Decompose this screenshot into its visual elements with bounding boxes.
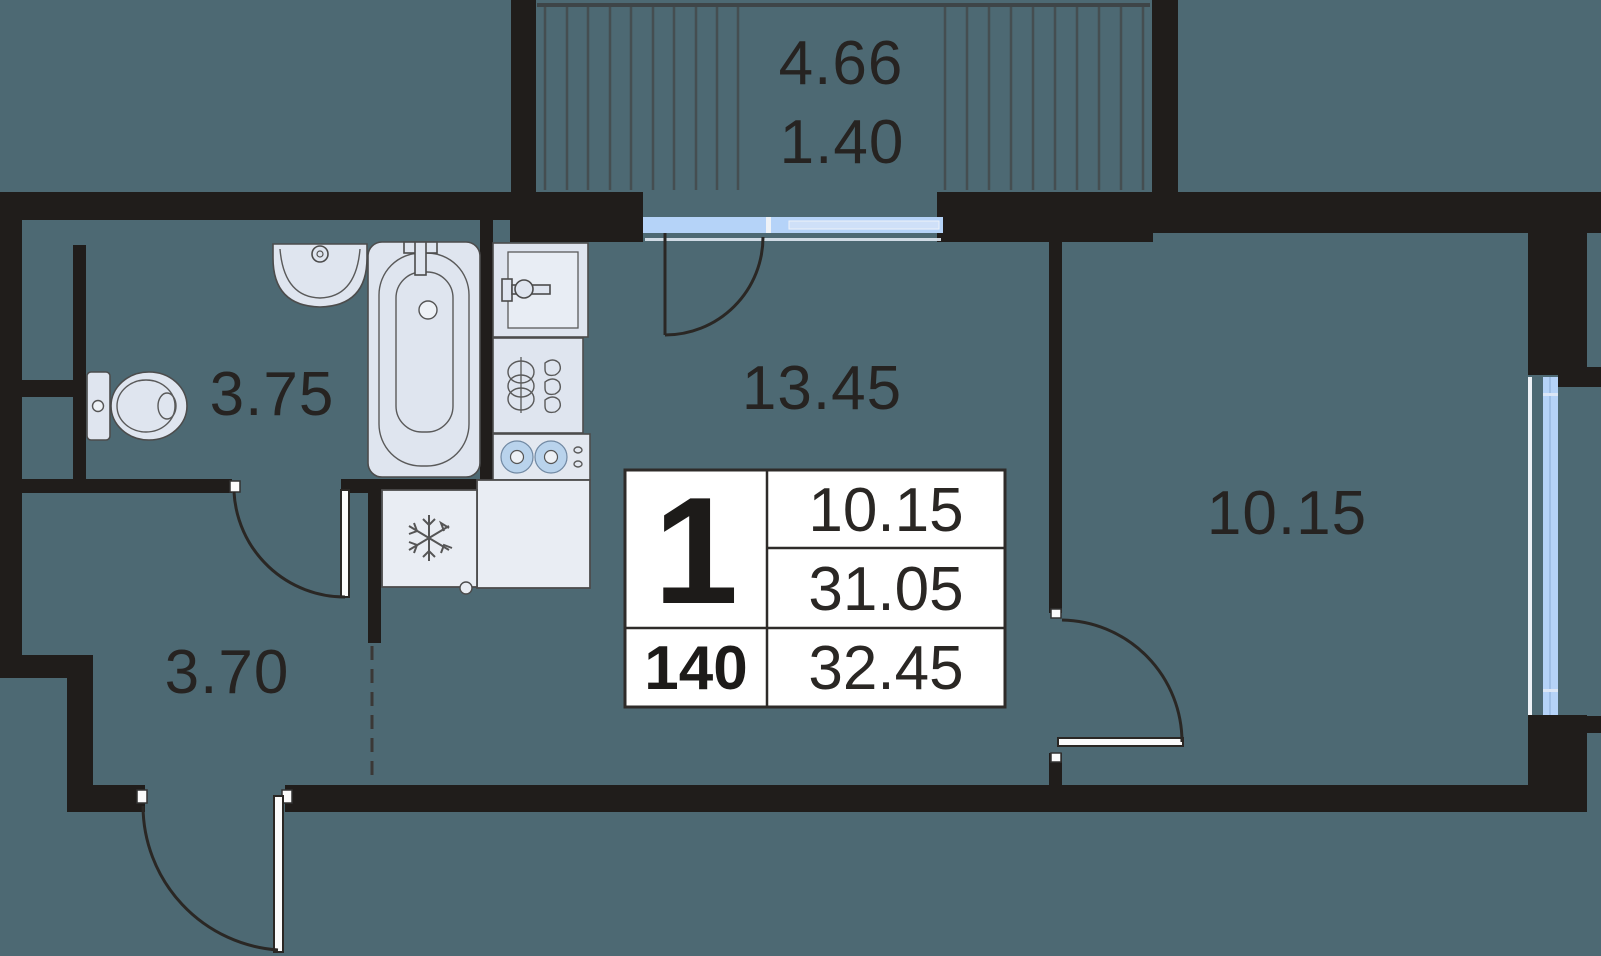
balcony-door-arc	[665, 237, 763, 335]
bathroom-door-leaf	[341, 490, 349, 597]
wall-room-divider	[1049, 233, 1062, 613]
wall-balcony-right	[1152, 0, 1178, 192]
label-balcony-area: 4.66	[779, 29, 904, 98]
kitchen-faucet-base	[502, 279, 512, 301]
floorplan-canvas: 4.66 1.40 3.75 13.45 3.70 10.15 1 10.15 …	[0, 0, 1601, 956]
bathroom-sink	[273, 244, 367, 307]
label-bathroom: 3.75	[210, 360, 335, 429]
entrance-jamb-left	[137, 790, 147, 803]
table-unit-number: 140	[644, 634, 747, 703]
bedroom-jamb-bottom	[1051, 753, 1061, 762]
wall-right-tab-bottom	[1559, 716, 1601, 733]
wall-top-left	[0, 192, 510, 220]
bedroom-door	[1051, 609, 1183, 762]
kitchen-cabinet-body	[493, 338, 583, 433]
right-window-tick-bottom	[1543, 689, 1558, 692]
wall-bath-kitchen	[480, 212, 493, 490]
fridge-hinge	[460, 582, 472, 594]
wall-right-tab-top	[1558, 367, 1601, 387]
balcony-rail-bars-left	[545, 7, 738, 190]
cooktop	[493, 434, 590, 480]
balcony-window-frame	[789, 221, 939, 229]
bedroom-jamb-top	[1051, 609, 1061, 618]
wall-right-upper	[1528, 233, 1587, 375]
kitchen-sink-unit	[493, 243, 588, 337]
wall-left	[0, 192, 22, 655]
toilet	[87, 372, 187, 440]
bedroom-door-leaf	[1058, 738, 1183, 746]
wall-balcony-left	[511, 0, 536, 192]
balcony-rail-bars-right	[945, 7, 1143, 190]
balcony-window-sill-line	[645, 238, 941, 241]
balcony-window-divider	[766, 217, 771, 233]
toilet-button	[93, 401, 104, 412]
right-window-mullion	[1549, 377, 1551, 715]
kitchen-counter	[477, 480, 590, 588]
label-balcony-reduced: 1.40	[780, 108, 905, 177]
floorplan-svg: 4.66 1.40 3.75 13.45 3.70 10.15 1 10.15 …	[0, 0, 1601, 956]
bathtub-faucet-stem	[415, 242, 426, 275]
wall-shaft	[73, 245, 86, 479]
bathroom-door-arc	[234, 492, 345, 597]
fridge	[382, 490, 477, 594]
burner-right-center	[545, 451, 558, 464]
label-hallway: 3.70	[165, 638, 290, 707]
table-rooms-count: 1	[654, 466, 739, 636]
wall-shaft-stub	[22, 380, 75, 397]
balcony-door	[665, 233, 763, 335]
burner-left-center	[511, 451, 524, 464]
bathroom-door	[230, 481, 349, 597]
entrance-door	[137, 790, 292, 952]
wall-top-right	[1153, 192, 1601, 233]
wall-left-step	[0, 655, 93, 678]
label-bedroom: 10.15	[1207, 479, 1367, 548]
right-window-tick-top	[1543, 393, 1558, 396]
wall-under-balcony-right	[937, 192, 1153, 242]
table-total-area: 32.45	[808, 634, 963, 703]
right-window-inner-line	[1528, 377, 1532, 715]
bathtub-drain	[419, 301, 437, 319]
wall-hall-kitchen	[368, 493, 381, 643]
table-living-area: 10.15	[808, 476, 963, 545]
wall-bottom-entry-left	[67, 785, 145, 812]
bathroom-door-jamb	[230, 481, 240, 492]
sink-faucet	[312, 246, 328, 262]
entrance-door-arc	[143, 806, 278, 950]
label-kitchen-living: 13.45	[742, 354, 902, 423]
info-table: 1 10.15 31.05 140 32.45	[625, 466, 1005, 707]
kitchen-faucet-joint	[515, 280, 533, 298]
entrance-door-leaf	[274, 796, 283, 952]
table-area-without-balcony: 31.05	[808, 555, 963, 624]
bathtub-rim	[368, 242, 480, 477]
bedroom-door-arc	[1062, 620, 1182, 742]
wall-bottom	[285, 785, 1587, 812]
wall-under-balcony-left	[510, 192, 643, 242]
kitchen-cabinet	[493, 338, 583, 433]
bathtub	[368, 242, 480, 477]
wall-bath-bottom-left	[22, 479, 232, 493]
